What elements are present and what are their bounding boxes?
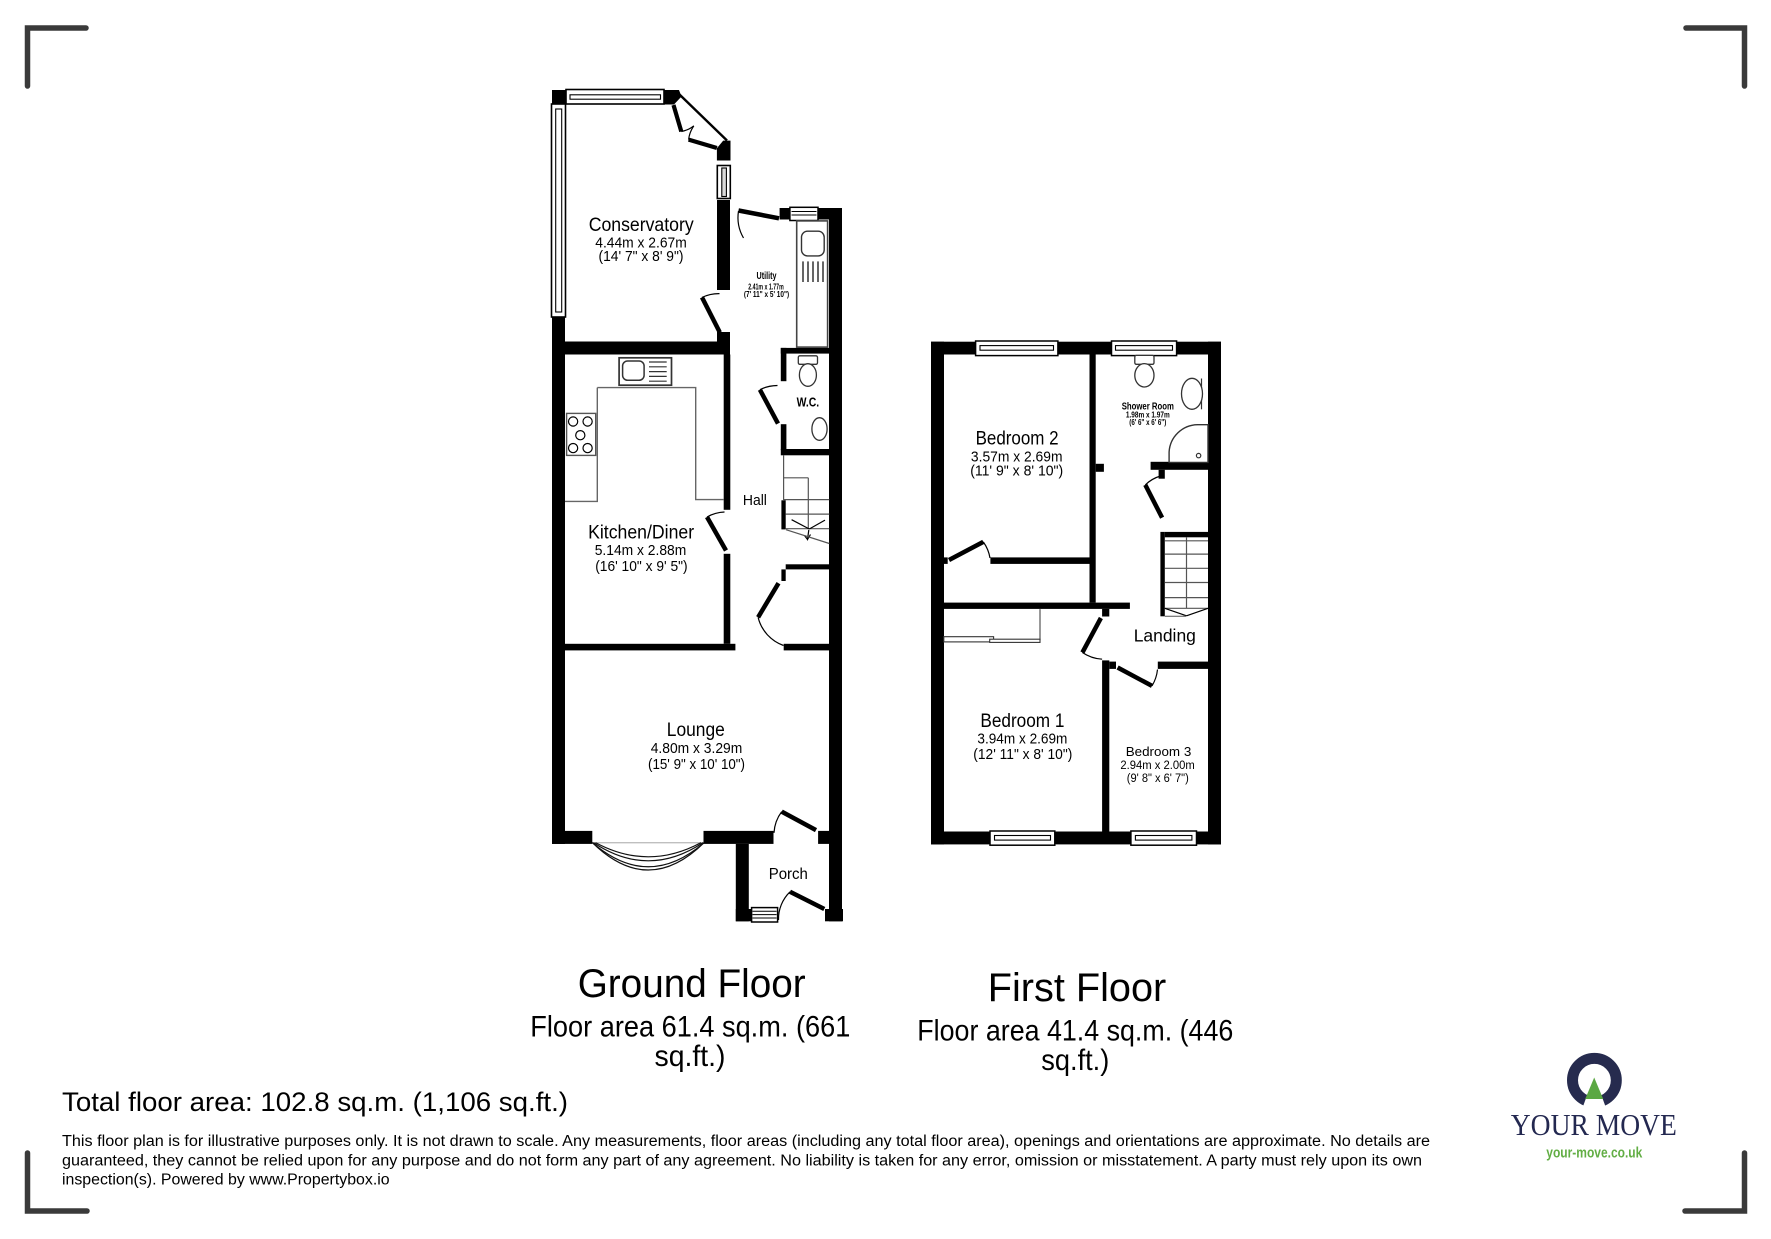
- svg-text:Floor area 61.4 sq.m. (661: Floor area 61.4 sq.m. (661: [530, 1011, 850, 1044]
- svg-text:5.14m x 2.88m: 5.14m x 2.88m: [595, 542, 687, 559]
- svg-text:(6' 6" x 6' 6"): (6' 6" x 6' 6"): [1129, 418, 1166, 427]
- svg-text:(11' 9" x 8' 10"): (11' 9" x 8' 10"): [970, 462, 1063, 479]
- svg-text:W.C.: W.C.: [797, 395, 820, 410]
- svg-text:(14' 7" x 8' 9"): (14' 7" x 8' 9"): [599, 248, 684, 265]
- svg-text:(12' 11" x 8' 10"): (12' 11" x 8' 10"): [973, 746, 1072, 763]
- svg-text:Landing: Landing: [1134, 625, 1196, 645]
- svg-text:(9' 8" x 6' 7"): (9' 8" x 6' 7"): [1127, 771, 1189, 785]
- svg-text:Conservatory: Conservatory: [589, 214, 694, 236]
- svg-text:Lounge: Lounge: [667, 719, 725, 741]
- svg-text:Bedroom 1: Bedroom 1: [980, 710, 1064, 732]
- svg-text:(7' 11" x 5' 10"): (7' 11" x 5' 10"): [744, 290, 790, 299]
- svg-text:YOUR MOVE: YOUR MOVE: [1511, 1107, 1677, 1142]
- svg-text:your-move.co.uk: your-move.co.uk: [1546, 1145, 1643, 1162]
- svg-text:(15' 9" x 10' 10"): (15' 9" x 10' 10"): [648, 756, 745, 773]
- svg-text:Floor area 41.4 sq.m. (446: Floor area 41.4 sq.m. (446: [917, 1014, 1233, 1047]
- svg-text:inspection(s). Powered by www.: inspection(s). Powered by www.Propertybo…: [62, 1172, 390, 1189]
- svg-text:Utility: Utility: [757, 271, 777, 282]
- svg-text:This floor plan is for illustr: This floor plan is for illustrative purp…: [62, 1133, 1430, 1150]
- svg-text:Total floor area: 102.8 sq.m.: Total floor area: 102.8 sq.m. (1,106 sq.…: [62, 1087, 568, 1117]
- svg-text:sq.ft.): sq.ft.): [655, 1040, 726, 1073]
- svg-text:Hall: Hall: [743, 492, 767, 509]
- svg-text:(16' 10" x 9' 5"): (16' 10" x 9' 5"): [595, 558, 687, 575]
- svg-text:First Floor: First Floor: [988, 966, 1167, 1010]
- svg-text:sq.ft.): sq.ft.): [1041, 1044, 1109, 1077]
- svg-text:Ground Floor: Ground Floor: [578, 962, 806, 1006]
- svg-text:Bedroom 3: Bedroom 3: [1126, 744, 1192, 759]
- svg-text:Bedroom 2: Bedroom 2: [976, 427, 1059, 449]
- svg-text:4.80m x 3.29m: 4.80m x 3.29m: [651, 740, 743, 757]
- svg-text:guaranteed, they cannot be rel: guaranteed, they cannot be relied upon f…: [62, 1152, 1422, 1169]
- svg-text:Porch: Porch: [769, 866, 808, 883]
- svg-text:Kitchen/Diner: Kitchen/Diner: [588, 521, 694, 543]
